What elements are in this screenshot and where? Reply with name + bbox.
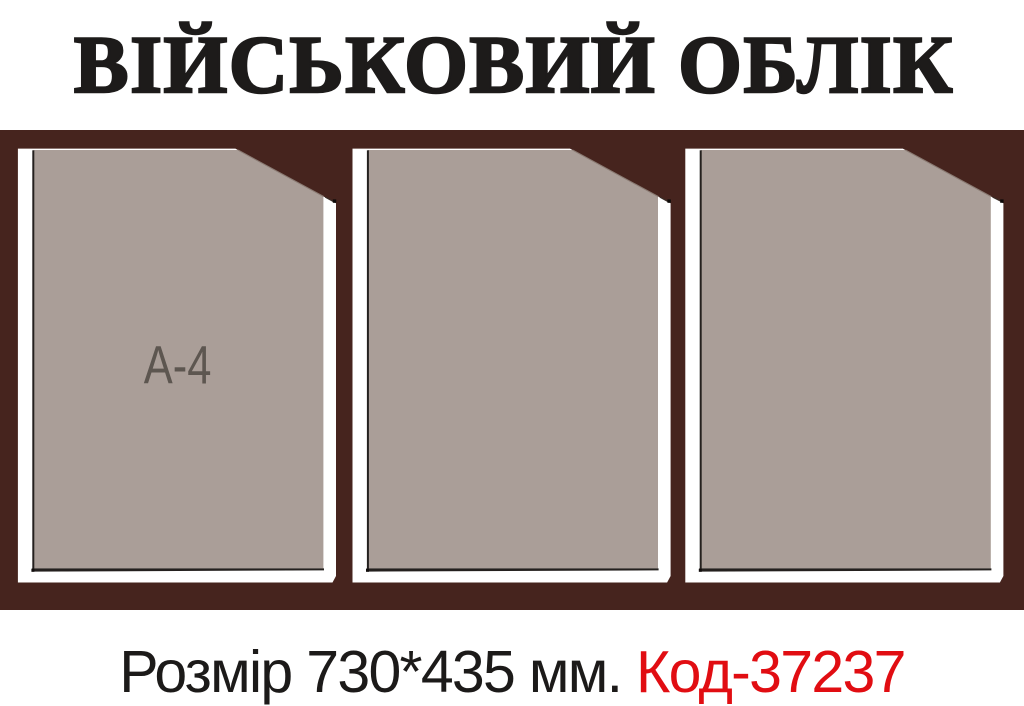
svg-text:А-4: А-4 (144, 335, 212, 395)
